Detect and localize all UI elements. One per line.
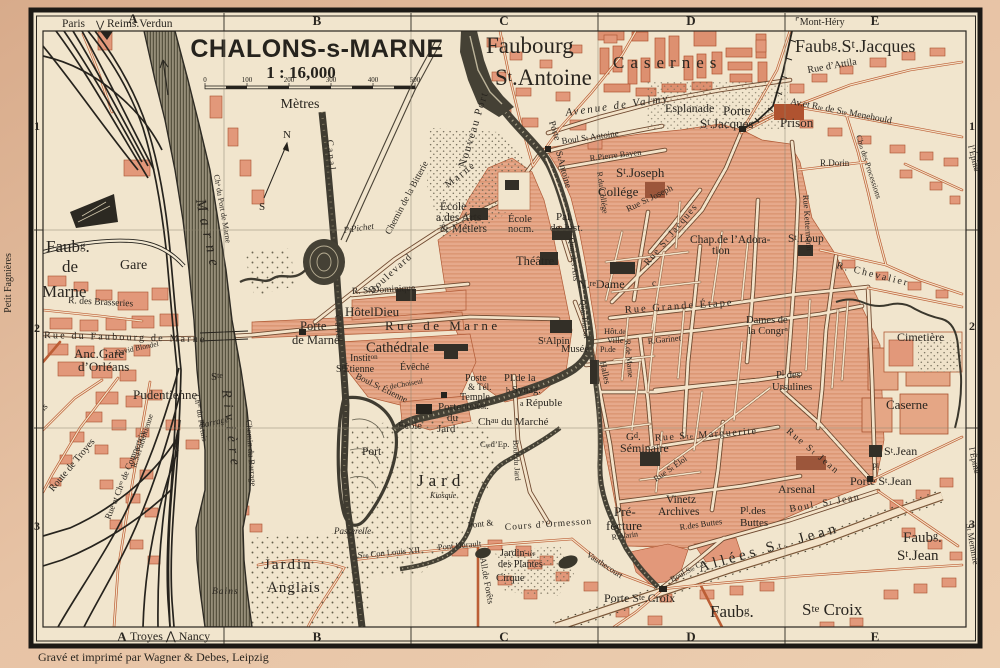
svg-text:de Marne: de Marne	[292, 333, 340, 347]
svg-text:c: c	[652, 278, 656, 288]
svg-text:Mètres: Mètres	[281, 97, 320, 112]
svg-text:D: D	[686, 629, 695, 644]
svg-text:& Métiers: & Métiers	[440, 223, 487, 235]
svg-text:1: 1	[969, 119, 975, 133]
svg-text:1: 1	[34, 119, 40, 133]
svg-text:protést.: protést.	[462, 401, 489, 411]
svg-text:École: École	[440, 199, 466, 213]
svg-text:300: 300	[326, 76, 337, 84]
svg-text:Caserne: Caserne	[886, 397, 928, 412]
svg-text:Passerelle: Passerelle	[333, 526, 371, 536]
svg-text:Pré-: Pré-	[614, 504, 636, 519]
svg-text:Petit Fagnières: Petit Fagnières	[3, 253, 14, 313]
svg-text:D: D	[686, 13, 695, 28]
svg-text:Csed’Ep.: Csed’Ep.	[480, 439, 509, 449]
svg-text:Archives: Archives	[658, 506, 700, 518]
svg-text:de Just.: de Just.	[550, 222, 583, 234]
svg-text:B: B	[313, 13, 322, 28]
svg-text:Pl.des: Pl.des	[740, 505, 766, 517]
svg-text:Évêché: Évêché	[400, 361, 430, 373]
svg-text:N.reDame: N.reDame	[578, 277, 625, 291]
svg-text:Pudentienne: Pudentienne	[133, 387, 197, 402]
svg-text:Faubg.St.Jacques: Faubg.St.Jacques	[795, 36, 915, 56]
svg-text:Anglais: Anglais	[267, 580, 321, 596]
svg-text:Gare: Gare	[120, 258, 147, 273]
svg-text:des Plantes: des Plantes	[498, 559, 543, 570]
svg-text:Pl.: Pl.	[872, 462, 881, 472]
svg-text:Vinetz: Vinetz	[666, 494, 696, 506]
svg-text:Kiosque: Kiosque	[429, 491, 457, 500]
svg-text:⋁: ⋁	[95, 20, 105, 31]
svg-text:Ville: Ville	[607, 335, 624, 345]
svg-text:C: C	[499, 629, 508, 644]
svg-text:E: E	[871, 629, 880, 644]
svg-text:R.Dorin: R.Dorin	[820, 158, 850, 168]
svg-text:Bains: Bains	[212, 587, 239, 597]
svg-text:CHALONS-s-MARNE: CHALONS-s-MARNE	[190, 35, 443, 63]
svg-text:Jard: Jard	[437, 423, 456, 435]
svg-text:C: C	[499, 13, 508, 28]
svg-text:tion: tion	[712, 245, 730, 257]
svg-text:Esplanade: Esplanade	[665, 101, 714, 115]
svg-text:A: A	[117, 629, 127, 644]
svg-text:Port: Port	[362, 446, 382, 458]
svg-text:Porte: Porte	[300, 319, 327, 333]
svg-text:Théâtre: Théâtre	[516, 254, 555, 268]
svg-text:400: 400	[368, 76, 379, 84]
svg-text:Buttes: Buttes	[740, 517, 768, 529]
svg-text:d’Orléans: d’Orléans	[78, 359, 129, 374]
svg-text:Dames de: Dames de	[746, 315, 788, 326]
svg-text:St.Jean: St.Jean	[884, 444, 917, 458]
svg-text:& Tél.: & Tél.	[468, 382, 491, 392]
svg-text:la Congrⁿ: la Congrⁿ	[748, 326, 788, 337]
svg-text:Canal: Canal	[333, 315, 344, 344]
svg-text:Paris: Paris	[62, 18, 86, 30]
svg-text:Arsenal: Arsenal	[778, 482, 816, 496]
svg-text:B: B	[313, 629, 322, 644]
svg-text:200: 200	[284, 76, 295, 84]
svg-text:Musée: Musée	[561, 344, 589, 355]
svg-text:Porte St.Jean: Porte St.Jean	[850, 474, 912, 488]
svg-text:Rue de Marne: Rue de Marne	[385, 318, 501, 333]
svg-text:St.Jean: St.Jean	[897, 548, 939, 564]
svg-text:Gravé et imprimé par Wagner &: Gravé et imprimé par Wagner & Debes, Lei…	[38, 650, 269, 664]
svg-text:nocm.: nocm.	[508, 224, 534, 235]
svg-text:2: 2	[969, 319, 975, 333]
svg-text:de: de	[62, 257, 78, 276]
svg-text:E: E	[871, 13, 880, 28]
svg-text:Reims.Verdun: Reims.Verdun	[107, 18, 173, 30]
svg-text:Casernes: Casernes	[613, 53, 722, 72]
svg-text:b Synag.: b Synag.	[506, 385, 541, 396]
svg-text:100: 100	[242, 76, 253, 84]
svg-text:0: 0	[203, 76, 207, 84]
svg-text:Cirque: Cirque	[496, 573, 525, 584]
svg-text:Troyes ⋀ Nancy: Troyes ⋀ Nancy	[130, 629, 210, 643]
svg-text:3: 3	[34, 519, 40, 533]
svg-text:HôtelDieu: HôtelDieu	[345, 304, 400, 319]
svg-text:Cimetière: Cimetière	[897, 330, 944, 344]
svg-text:Pl.des: Pl.des	[776, 369, 801, 381]
svg-text:a Républe: a Républe	[520, 397, 562, 409]
svg-text:N: N	[283, 129, 291, 141]
svg-text:Ursulines: Ursulines	[772, 382, 812, 393]
svg-text:École: École	[398, 420, 422, 432]
svg-text:Jardin: Jardin	[264, 557, 313, 573]
svg-text:Pl.de: Pl.de	[600, 345, 616, 354]
svg-text:S: S	[259, 201, 265, 213]
svg-text:Jardin-ier: Jardin-ier	[500, 548, 536, 559]
svg-text:Faubourg: Faubourg	[486, 33, 574, 58]
svg-text:⌜Mont-Héry: ⌜Mont-Héry	[795, 17, 845, 28]
svg-text:Jard: Jard	[417, 471, 465, 490]
svg-text:Chap.de l’Adora-: Chap.de l’Adora-	[690, 234, 771, 246]
svg-text:Chau du Marché: Chau du Marché	[478, 416, 549, 428]
svg-text:Ste Croix: Ste Croix	[802, 600, 863, 619]
svg-text:2: 2	[34, 321, 40, 335]
svg-text:3: 3	[969, 517, 975, 531]
svg-text:Pl.de la: Pl.de la	[504, 373, 536, 384]
